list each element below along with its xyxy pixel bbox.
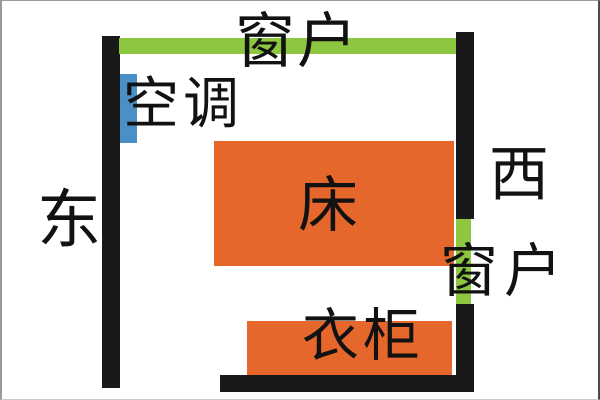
- floor-plan-canvas: 窗户 空调 东 西 床 窗户 衣柜: [0, 0, 600, 400]
- wardrobe-label: 衣柜: [302, 308, 424, 365]
- wall-bottom: [220, 375, 472, 392]
- window-top-label: 窗户: [235, 12, 359, 72]
- bed-label: 床: [298, 176, 358, 236]
- window-right-label: 窗户: [440, 242, 568, 300]
- wall-right-upper: [456, 32, 474, 219]
- east-label: 东: [37, 189, 101, 253]
- wall-left: [102, 36, 120, 388]
- west-label: 西: [489, 145, 549, 205]
- air-conditioner-label: 空调: [123, 77, 243, 133]
